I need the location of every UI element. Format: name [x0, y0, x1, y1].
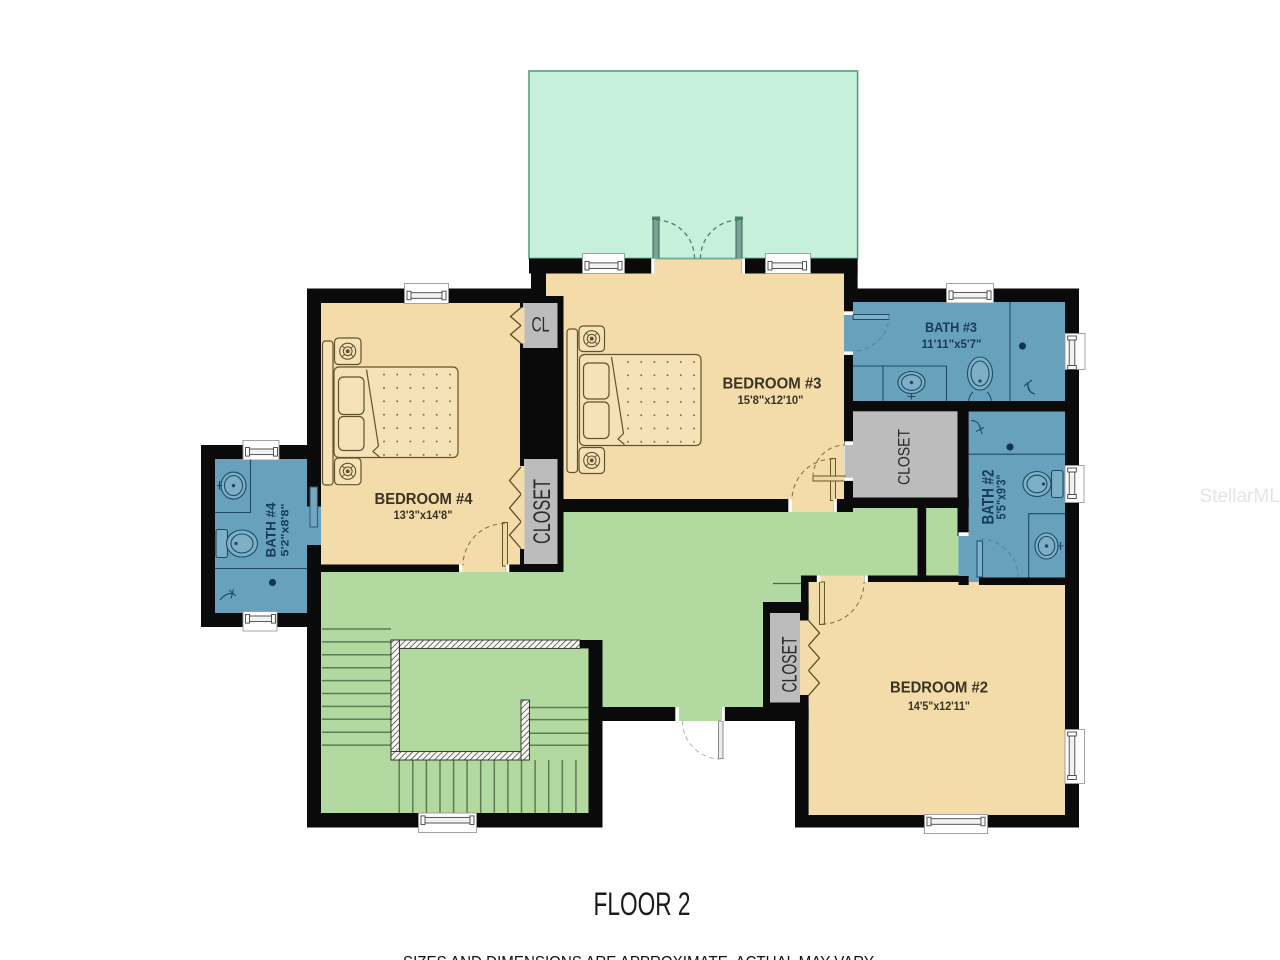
svg-text:15'8"x12'10": 15'8"x12'10": [738, 393, 804, 407]
svg-text:SIZES AND DIMENSIONS ARE APPRO: SIZES AND DIMENSIONS ARE APPROXIMATE, AC…: [403, 953, 874, 960]
svg-text:CLOSET: CLOSET: [778, 637, 802, 693]
svg-text:5'2"x8'8": 5'2"x8'8": [280, 504, 292, 557]
svg-text:BATH #3: BATH #3: [925, 319, 977, 335]
svg-text:FLOOR 2: FLOOR 2: [594, 886, 691, 922]
svg-text:13'3"x14'8": 13'3"x14'8": [394, 508, 453, 522]
svg-text:14'5"x12'11": 14'5"x12'11": [908, 699, 970, 713]
svg-text:StellarMLS: StellarMLS: [1200, 486, 1280, 507]
svg-text:BEDROOM #2: BEDROOM #2: [890, 680, 988, 697]
svg-text:BATH #4: BATH #4: [264, 502, 279, 557]
svg-text:CLOSET: CLOSET: [895, 429, 914, 485]
svg-text:BEDROOM #4: BEDROOM #4: [375, 491, 473, 508]
svg-text:5'5"x9'3": 5'5"x9'3": [995, 474, 1009, 519]
svg-text:BEDROOM #3: BEDROOM #3: [723, 376, 822, 393]
svg-text:11'11"x5'7": 11'11"x5'7": [922, 337, 982, 351]
svg-text:CL: CL: [532, 314, 550, 337]
svg-text:CLOSET: CLOSET: [529, 479, 556, 544]
